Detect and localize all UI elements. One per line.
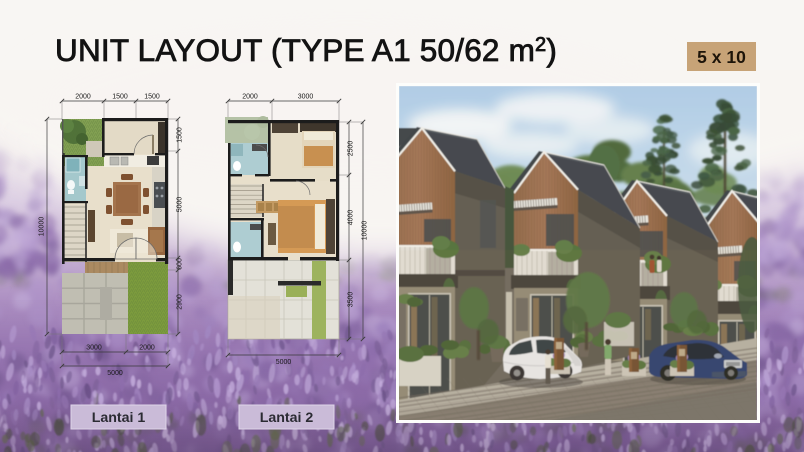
svg-text:UNIT LAYOUT (TYPE A1 50/62 m2): UNIT LAYOUT (TYPE A1 50/62 m2) bbox=[55, 32, 557, 68]
svg-text:10000: 10000 bbox=[39, 217, 46, 237]
svg-text:2000: 2000 bbox=[139, 345, 155, 352]
svg-text:10000: 10000 bbox=[362, 221, 369, 241]
svg-text:5000: 5000 bbox=[107, 370, 123, 377]
svg-text:5000: 5000 bbox=[177, 197, 184, 213]
svg-text:4000: 4000 bbox=[348, 210, 355, 226]
svg-text:3000: 3000 bbox=[298, 94, 314, 101]
svg-text:1500: 1500 bbox=[112, 94, 128, 101]
svg-text:1500: 1500 bbox=[144, 94, 160, 101]
svg-text:3500: 3500 bbox=[348, 292, 355, 308]
svg-text:2000: 2000 bbox=[75, 94, 91, 101]
svg-text:Lantai 1: Lantai 1 bbox=[92, 410, 146, 426]
svg-text:2900: 2900 bbox=[177, 294, 184, 310]
svg-text:1500: 1500 bbox=[177, 127, 184, 143]
svg-text:2000: 2000 bbox=[242, 94, 258, 101]
svg-text:5000: 5000 bbox=[276, 359, 292, 366]
svg-text:2500: 2500 bbox=[348, 141, 355, 157]
svg-text:3000: 3000 bbox=[86, 345, 102, 352]
svg-text:Lantai 2: Lantai 2 bbox=[260, 410, 314, 426]
svg-text:5 x 10: 5 x 10 bbox=[697, 47, 746, 67]
